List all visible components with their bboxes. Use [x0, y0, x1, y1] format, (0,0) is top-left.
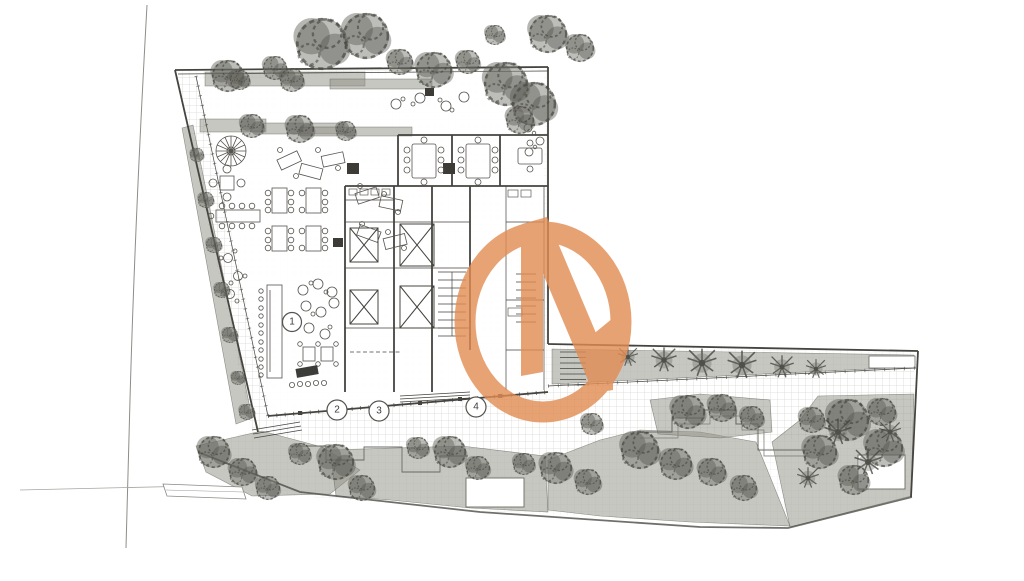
reflecting-pool [466, 478, 524, 507]
plan-marker-3: 3 [369, 401, 389, 421]
street-lines [20, 5, 195, 548]
marker-2-label: 2 [334, 405, 340, 416]
marker-4-label: 4 [473, 402, 479, 413]
plan-marker-2: 2 [327, 400, 347, 420]
plan-marker-4: 4 [466, 397, 486, 417]
plan-marker-1: 1 [283, 313, 302, 332]
spiral-stair [216, 136, 246, 166]
floor-plan-page: 1 2 3 4 [0, 0, 1024, 581]
floor-plan-drawing: 1 2 3 4 [0, 0, 1024, 581]
marker-3-label: 3 [376, 406, 382, 417]
marker-1-label: 1 [289, 317, 295, 328]
